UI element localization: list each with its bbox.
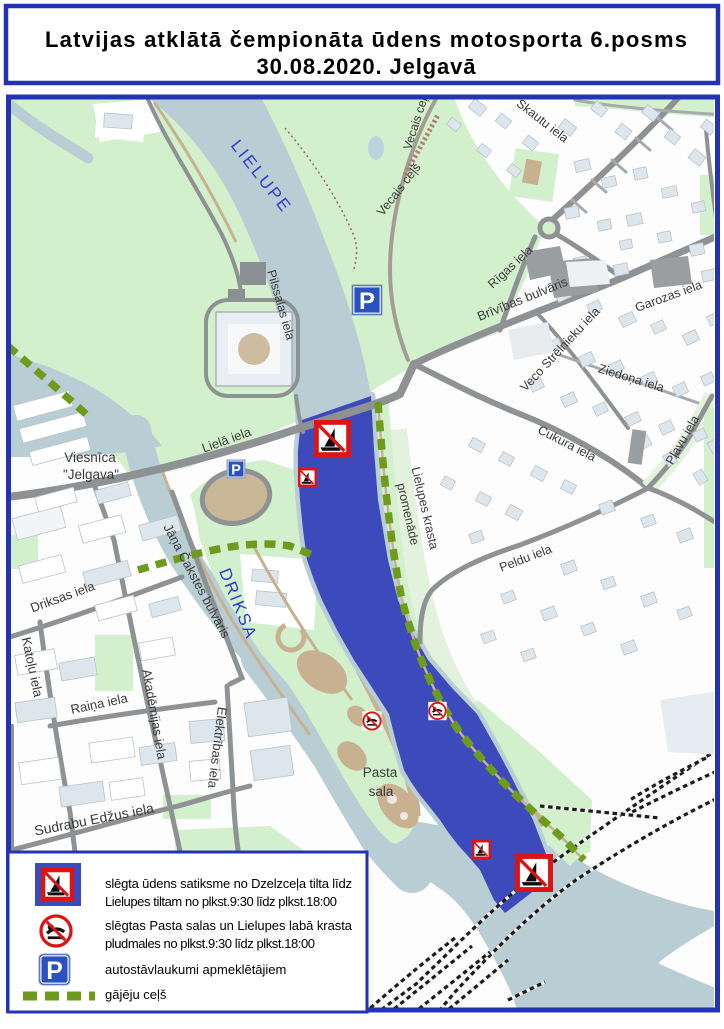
svg-text:Latvijas atklātā čempionāta ūd: Latvijas atklātā čempionāta ūdens motosp… — [45, 27, 687, 52]
svg-text:P: P — [231, 462, 241, 478]
svg-text:autostāvlaukumi apmeklētājiem: autostāvlaukumi apmeklētājiem — [105, 962, 286, 977]
svg-text:slēgtas Pasta salas un Lielupe: slēgtas Pasta salas un Lielupes labā kra… — [105, 918, 353, 933]
svg-text:P: P — [46, 958, 63, 985]
svg-text:Pasta: Pasta — [363, 765, 398, 780]
svg-text:gājēju ceļš: gājēju ceļš — [105, 987, 167, 1002]
svg-text:Viesnīca: Viesnīca — [64, 450, 116, 465]
svg-text:"Jelgava": "Jelgava" — [63, 467, 119, 482]
svg-text:sala: sala — [369, 784, 394, 799]
svg-text:pludmales no plkst.9:30 līdz p: pludmales no plkst.9:30 līdz plkst.18:00 — [105, 936, 315, 951]
svg-text:30.08.2020. Jelgavā: 30.08.2020. Jelgavā — [257, 54, 477, 79]
svg-text:slēgta ūdens satiksme no Dzelz: slēgta ūdens satiksme no Dzelzceļa tilta… — [105, 876, 352, 891]
svg-text:P: P — [359, 288, 375, 315]
svg-text:Lielupes tiltam no plkst.9:30: Lielupes tiltam no plkst.9:30 līdz plkst… — [105, 894, 337, 909]
